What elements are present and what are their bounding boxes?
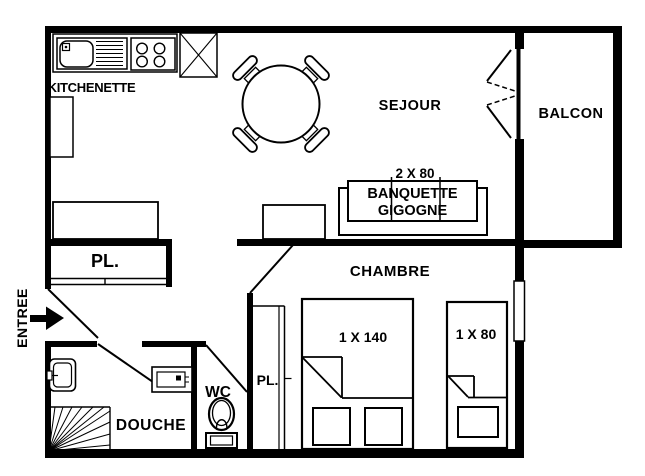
label-banquette-line1: BANQUETTE xyxy=(367,186,458,202)
chambre-window xyxy=(514,281,525,341)
label-wc: WC xyxy=(205,384,231,401)
kitchenette-unit xyxy=(53,33,217,77)
wall-right-lower xyxy=(515,341,524,458)
chambre-door-leaf xyxy=(250,245,293,293)
wall-bottom xyxy=(45,449,524,458)
faucet-dot xyxy=(65,46,68,49)
bed-single xyxy=(447,302,507,448)
side-table-rect xyxy=(263,205,325,239)
label-closet-hall: PL. xyxy=(91,251,119,271)
dining-table-set xyxy=(231,54,331,154)
toilet-icon xyxy=(206,398,237,448)
label-chambre: CHAMBRE xyxy=(350,263,430,280)
label-balcon: BALCON xyxy=(538,106,603,122)
sofa-rect xyxy=(53,202,158,239)
stairs-fan xyxy=(48,407,110,452)
wall-right-mid xyxy=(515,139,524,281)
label-banquette-line2: GIGOGNE xyxy=(378,203,448,219)
balcony-door-arc-upper xyxy=(487,82,515,91)
floor-plan-page: KITCHENETTE SEJOUR BALCON 2 X 80 BANQUET… xyxy=(0,0,645,476)
balcony-door-leaf-lower xyxy=(487,106,511,138)
label-sejour: SEJOUR xyxy=(379,98,442,114)
wall-right-door-stub-top xyxy=(515,26,524,49)
drainer-lines xyxy=(96,42,123,66)
hall-closet xyxy=(48,279,166,285)
wall-douche-wc xyxy=(191,341,197,449)
wall-chambre-left xyxy=(247,293,253,449)
label-douche: DOUCHE xyxy=(116,417,186,434)
bed-double xyxy=(302,299,413,449)
wall-douche-top-a xyxy=(45,341,97,347)
label-bed-single-size: 1 X 80 xyxy=(456,326,497,342)
entree-arrow-icon xyxy=(30,307,64,331)
wall-closet-hall-right xyxy=(166,239,172,287)
label-closet-chambre: PL. xyxy=(257,372,279,388)
wall-sejour-chambre xyxy=(237,239,524,246)
label-bed-double-size: 1 X 140 xyxy=(339,329,387,345)
balcony-door-arc-lower xyxy=(487,96,515,105)
shower-tray-icon xyxy=(152,367,192,392)
wall-balcony-right xyxy=(613,26,622,248)
label-banquette-size: 2 X 80 xyxy=(395,166,434,181)
round-table xyxy=(243,66,320,143)
floor-plan-drawing: KITCHENETTE SEJOUR BALCON 2 X 80 BANQUET… xyxy=(0,0,645,476)
label-kitchenette: KITCHENETTE xyxy=(48,80,136,95)
wardrobe-rect xyxy=(50,97,73,157)
balcony-door-leaf-upper xyxy=(487,50,511,81)
label-entree: ENTREE xyxy=(14,288,30,348)
wall-balcony-bottom xyxy=(515,240,622,248)
wall-closet-hall-top xyxy=(45,239,172,246)
wall-top xyxy=(45,26,622,33)
balcony-door-threshold xyxy=(517,49,521,139)
washbasin-icon xyxy=(47,359,76,391)
